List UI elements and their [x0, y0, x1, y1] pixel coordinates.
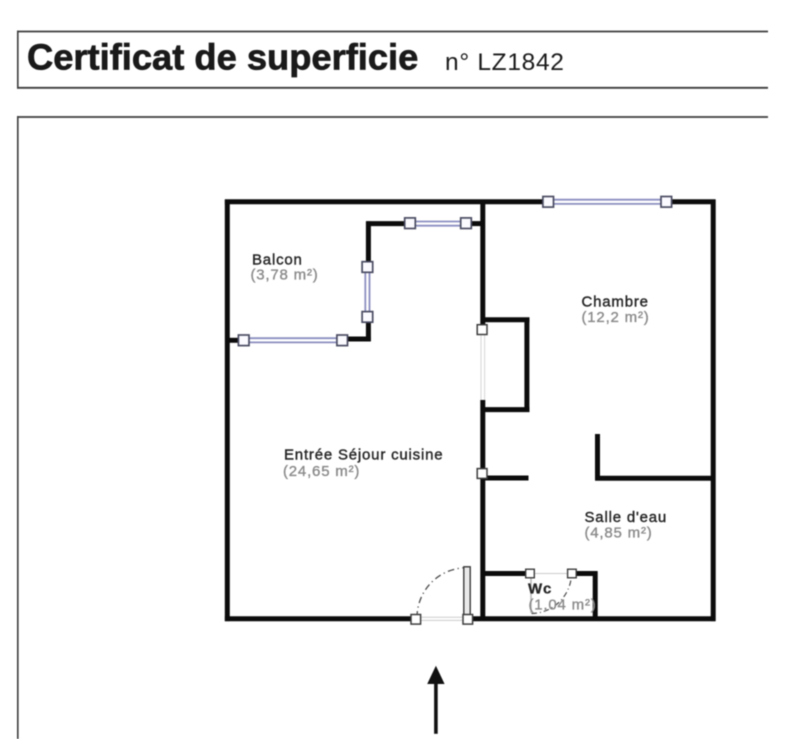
- svg-text:(4,85 m²): (4,85 m²): [585, 525, 653, 542]
- svg-text:(12,2 m²): (12,2 m²): [582, 309, 650, 326]
- svg-text:n° LZ1842: n° LZ1842: [445, 49, 565, 76]
- svg-text:(1,04 m²): (1,04 m²): [529, 597, 597, 614]
- svg-text:Entrée Séjour cuisine: Entrée Séjour cuisine: [284, 447, 443, 464]
- svg-text:Salle d'eau: Salle d'eau: [585, 509, 668, 526]
- svg-text:(24,65 m²): (24,65 m²): [283, 463, 360, 480]
- svg-text:Certificat de superficie: Certificat de superficie: [27, 37, 418, 78]
- svg-text:(3,78 m²): (3,78 m²): [251, 267, 319, 284]
- svg-text:Wc: Wc: [528, 581, 552, 598]
- svg-text:Chambre: Chambre: [582, 294, 649, 311]
